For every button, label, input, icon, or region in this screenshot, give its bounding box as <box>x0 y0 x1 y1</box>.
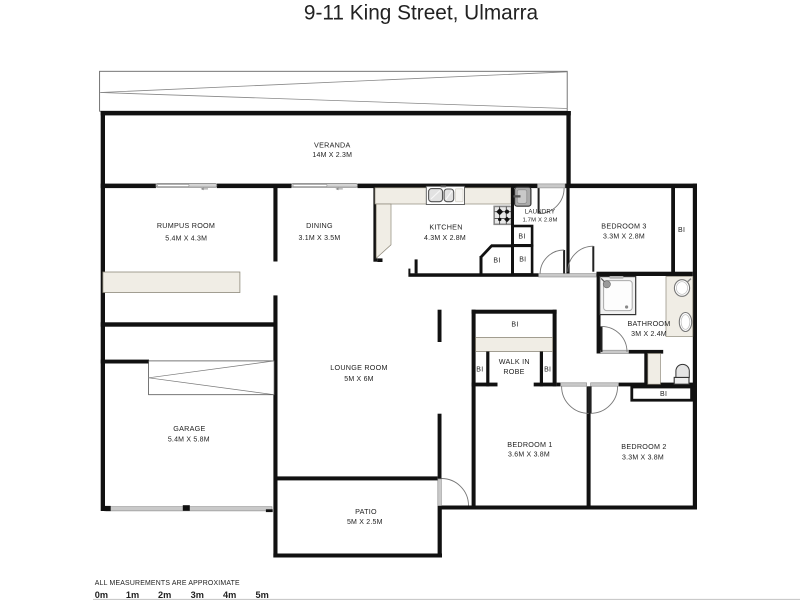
svg-text:4m: 4m <box>223 590 236 600</box>
svg-text:BI: BI <box>518 233 525 240</box>
svg-text:14M X 2.3M: 14M X 2.3M <box>312 152 352 159</box>
svg-text:VERANDA: VERANDA <box>314 140 351 149</box>
svg-text:LAUNDRY: LAUNDRY <box>525 208 555 215</box>
svg-text:9-11 King Street, Ulmarra: 9-11 King Street, Ulmarra <box>304 1 539 24</box>
svg-text:BATHROOM: BATHROOM <box>628 319 671 328</box>
svg-text:ALL MEASUREMENTS ARE APPROXIMA: ALL MEASUREMENTS ARE APPROXIMATE <box>95 580 240 587</box>
svg-text:BEDROOM 3: BEDROOM 3 <box>601 221 646 230</box>
svg-text:5.4M X 5.8M: 5.4M X 5.8M <box>168 437 210 444</box>
svg-text:0m: 0m <box>95 590 108 600</box>
svg-text:BEDROOM 2: BEDROOM 2 <box>621 442 666 451</box>
svg-text:BEDROOM 1: BEDROOM 1 <box>507 440 552 449</box>
svg-text:BI: BI <box>544 367 551 374</box>
svg-text:3.3M X 3.8M: 3.3M X 3.8M <box>622 454 664 461</box>
svg-text:ROBE: ROBE <box>503 367 524 376</box>
svg-text:2m: 2m <box>158 590 171 600</box>
svg-text:WALK IN: WALK IN <box>499 357 530 366</box>
svg-text:5m: 5m <box>255 590 268 600</box>
svg-text:BI: BI <box>519 256 526 263</box>
svg-text:BI: BI <box>511 322 518 329</box>
svg-text:5M X 6M: 5M X 6M <box>344 376 373 383</box>
svg-text:BI: BI <box>678 227 685 234</box>
svg-text:BI: BI <box>476 366 483 373</box>
svg-text:4.3M X 2.8M: 4.3M X 2.8M <box>424 235 466 242</box>
svg-text:3m: 3m <box>191 590 204 600</box>
svg-text:3.1M X 3.5M: 3.1M X 3.5M <box>299 235 341 242</box>
svg-text:1.7M X 2.8M: 1.7M X 2.8M <box>522 217 557 223</box>
svg-text:3.6M X 3.8M: 3.6M X 3.8M <box>508 452 550 459</box>
svg-text:GARAGE: GARAGE <box>173 424 205 433</box>
svg-text:PATIO: PATIO <box>355 507 377 516</box>
svg-text:BI: BI <box>493 257 500 264</box>
svg-text:3.3M X 2.8M: 3.3M X 2.8M <box>603 233 645 240</box>
svg-text:LOUNGE ROOM: LOUNGE ROOM <box>330 363 387 372</box>
svg-text:DINING: DINING <box>306 221 333 230</box>
svg-text:5M X 2.5M: 5M X 2.5M <box>347 519 383 526</box>
svg-text:5.4M X 4.3M: 5.4M X 4.3M <box>165 235 207 242</box>
svg-text:BI: BI <box>660 391 667 398</box>
svg-text:RUMPUS ROOM: RUMPUS ROOM <box>157 221 215 230</box>
svg-text:KITCHEN: KITCHEN <box>429 223 462 232</box>
svg-text:1m: 1m <box>126 590 139 600</box>
svg-text:3M X 2.4M: 3M X 2.4M <box>631 331 667 338</box>
